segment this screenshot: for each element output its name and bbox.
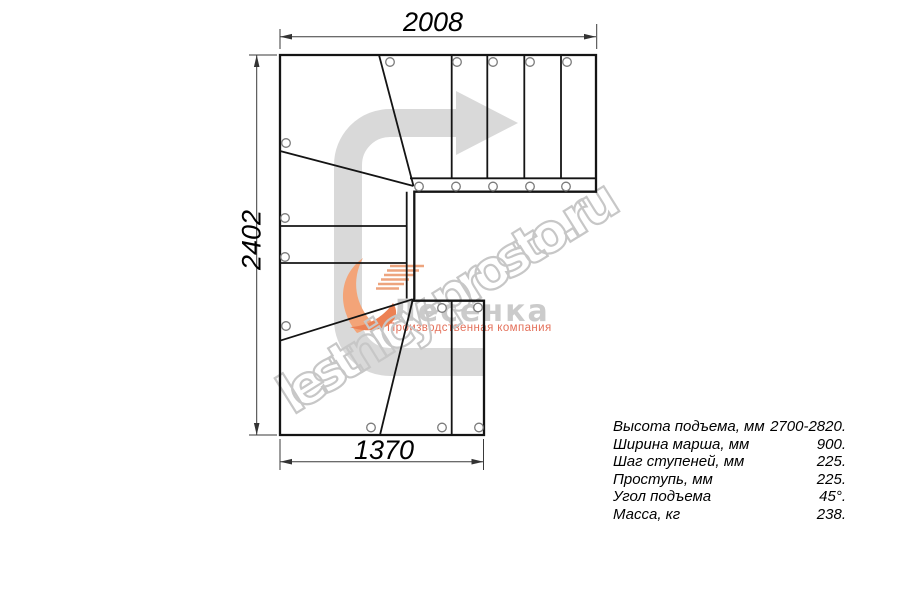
spec-label: Высота подъема, мм — [613, 418, 765, 436]
dimension-bottom-width: 1370 — [354, 435, 414, 466]
spec-row: Шаг ступеней, мм 225. — [613, 453, 846, 471]
dimension-top-width: 2008 — [403, 7, 463, 38]
spec-row: Угол подъема 45°. — [613, 488, 846, 506]
spec-label: Проступь, мм — [613, 471, 713, 489]
spec-row: Ширина марша, мм 900. — [613, 436, 846, 454]
staircase-drawing-page: Лесенка Производственная компания lestni… — [0, 0, 900, 600]
spec-table: Высота подъема, мм 2700-2820. Ширина мар… — [613, 418, 846, 524]
spec-value: 225. — [817, 453, 846, 471]
spec-value: 45°. — [819, 488, 846, 506]
spec-label: Масса, кг — [613, 506, 680, 524]
spec-value: 238. — [817, 506, 846, 524]
spec-value: 900. — [817, 436, 846, 454]
spec-row: Масса, кг 238. — [613, 506, 846, 524]
spec-label: Ширина марша, мм — [613, 436, 749, 454]
spec-label: Шаг ступеней, мм — [613, 453, 744, 471]
spec-row: Проступь, мм 225. — [613, 471, 846, 489]
spec-row: Высота подъема, мм 2700-2820. — [613, 418, 846, 436]
dimension-left-height: 2402 — [237, 210, 268, 270]
watermark-text: lestnicy-prosto.ru — [266, 169, 626, 427]
spec-value: 2700-2820. — [770, 418, 846, 436]
spec-value: 225. — [817, 471, 846, 489]
spec-label: Угол подъема — [613, 488, 711, 506]
